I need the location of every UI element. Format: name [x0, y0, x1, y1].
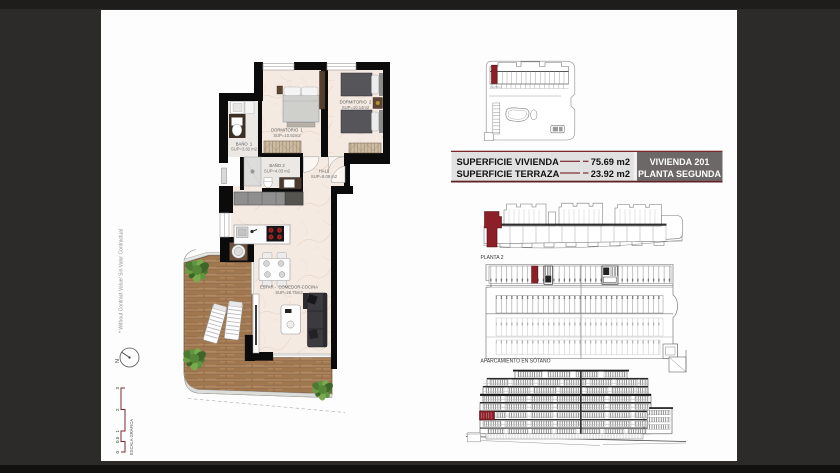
svg-text:ESCALA GRÁFICA: ESCALA GRÁFICA	[129, 419, 134, 455]
svg-text:SUPERFICIE TERRAZA: SUPERFICIE TERRAZA	[457, 169, 560, 179]
svg-text:PLANTA 2: PLANTA 2	[490, 85, 503, 89]
svg-text:PLANTA 2: PLANTA 2	[481, 255, 504, 261]
svg-text:DORMITORIO 2: DORMITORIO 2	[340, 100, 372, 105]
svg-text:0.5: 0.5	[115, 436, 120, 443]
svg-text:23.92 m2: 23.92 m2	[591, 169, 630, 179]
svg-text:SUP=10.14m2: SUP=10.14m2	[342, 105, 370, 110]
svg-text:SUP=10.92m2: SUP=10.92m2	[273, 133, 301, 138]
svg-text:SUP=4.03 m2: SUP=4.03 m2	[264, 169, 291, 174]
svg-text:N: N	[115, 359, 121, 363]
svg-text:DORMITORIO 1: DORMITORIO 1	[271, 128, 303, 133]
svg-text:SUP=28.75m2: SUP=28.75m2	[275, 290, 303, 295]
svg-text:* Without Contract Value/ Sin: * Without Contract Value/ Sin Valor Cont…	[119, 229, 125, 333]
svg-text:BAÑO 2: BAÑO 2	[269, 163, 285, 168]
svg-text:75.69 m2: 75.69 m2	[591, 157, 630, 167]
svg-text:SUP=3.82 m2: SUP=3.82 m2	[231, 147, 258, 152]
svg-text:ESTAR - COMEDOR-COCINA: ESTAR - COMEDOR-COCINA	[260, 285, 318, 290]
svg-text:SUP=8.08 m2: SUP=8.08 m2	[311, 174, 338, 179]
svg-text:HALL: HALL	[319, 169, 330, 174]
svg-text:VIVIENDA 201: VIVIENDA 201	[650, 157, 710, 167]
svg-text:SUPERFICIE VIVIENDA: SUPERFICIE VIVIENDA	[457, 157, 560, 167]
svg-text:APARCAMIENTO EN SÓTANO: APARCAMIENTO EN SÓTANO	[481, 358, 551, 365]
svg-text:PLANTA SEGUNDA: PLANTA SEGUNDA	[638, 169, 722, 179]
